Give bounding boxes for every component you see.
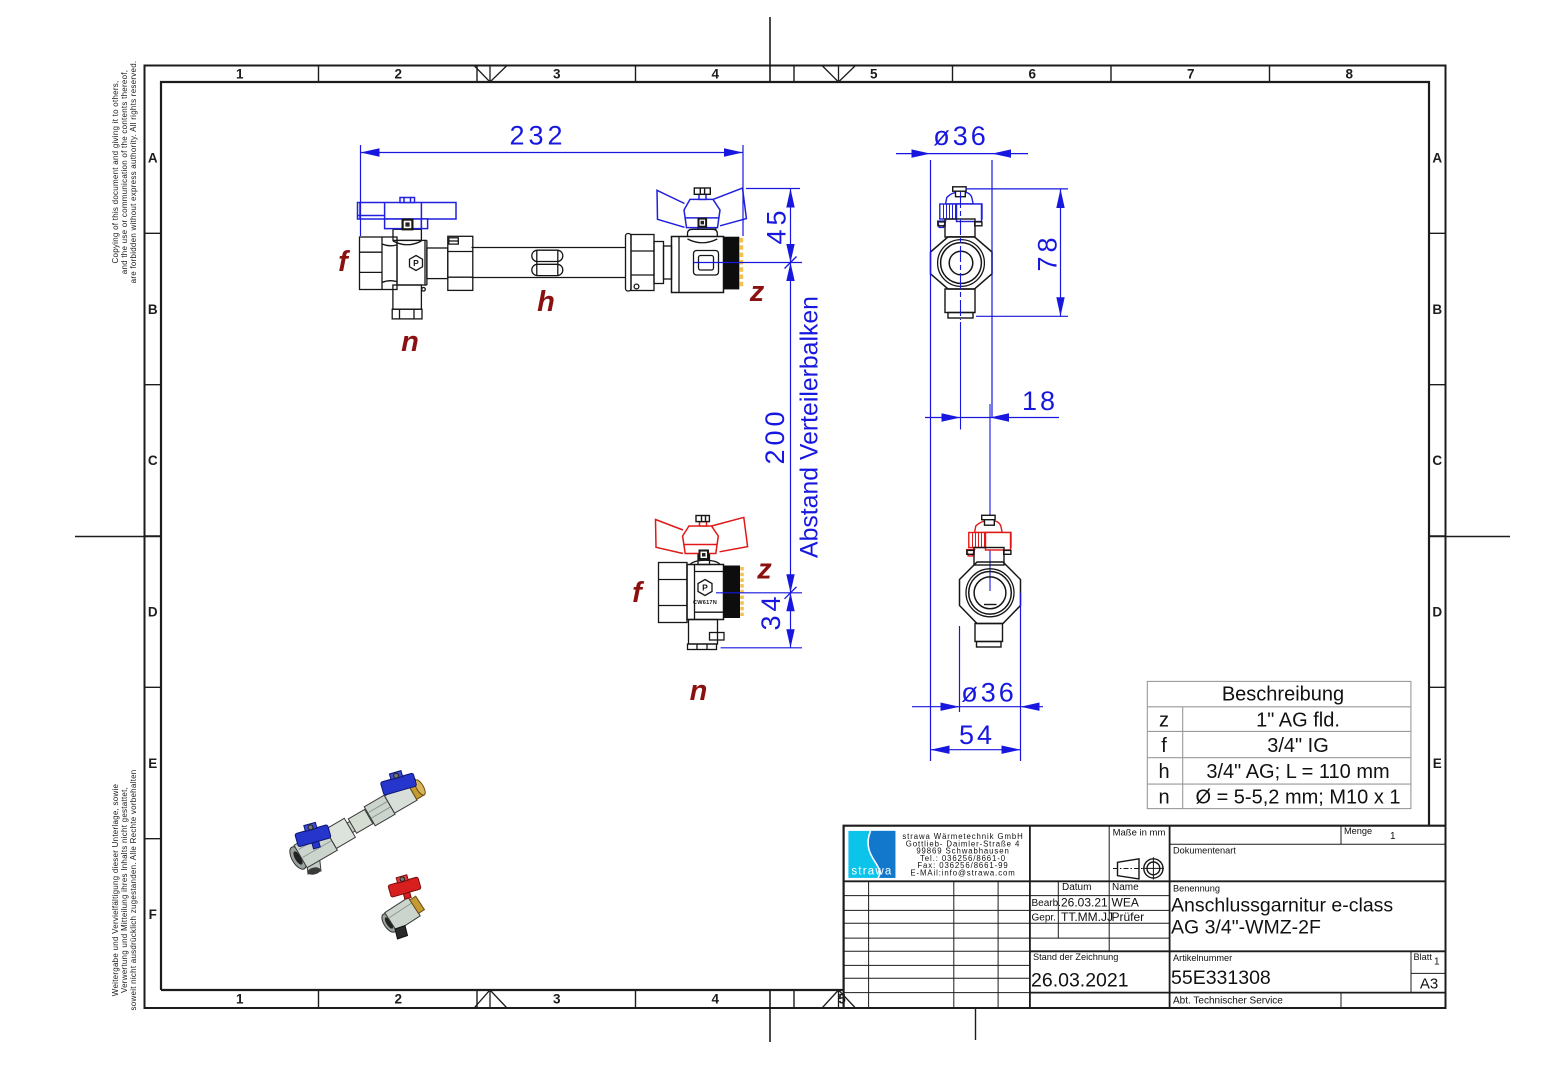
svg-text:34: 34 <box>756 592 786 630</box>
svg-text:B: B <box>1432 302 1442 317</box>
svg-text:f: f <box>338 246 351 278</box>
svg-text:Artikelnummer: Artikelnummer <box>1173 953 1232 963</box>
svg-text:CW617N: CW617N <box>693 600 717 606</box>
svg-text:Weitergabe und Vervielfältigun: Weitergabe und Vervielfältigung dieser U… <box>111 784 120 997</box>
svg-text:Datum: Datum <box>1062 882 1091 893</box>
svg-text:h: h <box>537 286 555 318</box>
svg-text:B: B <box>148 302 158 317</box>
svg-text:26.03.21: 26.03.21 <box>1061 896 1108 910</box>
svg-text:A: A <box>1432 151 1442 166</box>
svg-text:Maße in mm: Maße in mm <box>1113 828 1166 839</box>
svg-text:f: f <box>1161 735 1167 757</box>
svg-text:strawa: strawa <box>851 866 892 878</box>
svg-text:232: 232 <box>509 121 566 151</box>
svg-text:TT.MM.JJ: TT.MM.JJ <box>1061 910 1113 924</box>
svg-text:C: C <box>1432 453 1442 468</box>
svg-text:8: 8 <box>1346 67 1354 82</box>
svg-text:4: 4 <box>712 992 720 1007</box>
svg-text:18: 18 <box>1022 386 1058 416</box>
svg-text:Menge: Menge <box>1344 826 1372 836</box>
svg-text:are forbidden without express: are forbidden without express authority.… <box>129 61 138 284</box>
svg-text:n: n <box>401 326 419 358</box>
svg-text:1: 1 <box>1390 831 1396 842</box>
svg-text:Name: Name <box>1112 882 1139 893</box>
svg-text:2: 2 <box>395 992 403 1007</box>
svg-text:Dokumentenart: Dokumentenart <box>1173 846 1236 856</box>
svg-text:E: E <box>148 756 157 771</box>
svg-text:f: f <box>632 577 645 609</box>
svg-text:Stand der Zeichnung: Stand der Zeichnung <box>1033 952 1118 962</box>
svg-text:h: h <box>1158 761 1169 783</box>
svg-text:Copying of this document and g: Copying of this document and giving it t… <box>111 80 120 263</box>
svg-text:AG 3/4"-WMZ-2F: AG 3/4"-WMZ-2F <box>1171 917 1321 939</box>
svg-text:and the use or communication o: and the use or communication of the cont… <box>120 70 129 274</box>
svg-text:3: 3 <box>553 992 561 1007</box>
svg-text:D: D <box>1432 605 1442 620</box>
svg-text:z: z <box>756 554 772 586</box>
svg-text:1: 1 <box>1434 957 1440 968</box>
svg-text:200: 200 <box>760 407 790 464</box>
svg-text:Prüfer: Prüfer <box>1112 910 1145 924</box>
svg-text:45: 45 <box>762 206 792 244</box>
svg-text:78: 78 <box>1033 233 1063 271</box>
svg-text:P: P <box>702 583 708 593</box>
svg-text:n: n <box>690 675 708 707</box>
svg-text:z: z <box>1159 710 1169 732</box>
svg-text:ø36: ø36 <box>961 678 1017 708</box>
svg-text:F: F <box>149 907 157 922</box>
svg-text:z: z <box>749 276 765 308</box>
svg-text:Abt. Technischer Service: Abt. Technischer Service <box>1173 996 1283 1007</box>
svg-text:E: E <box>1433 756 1442 771</box>
svg-text:D: D <box>148 605 158 620</box>
svg-text:1: 1 <box>236 67 244 82</box>
svg-text:55E331308: 55E331308 <box>1171 967 1271 989</box>
svg-text:Anschlussgarnitur e-class: Anschlussgarnitur e-class <box>1171 895 1393 917</box>
svg-text:Bearb.: Bearb. <box>1032 898 1061 909</box>
svg-text:A: A <box>148 151 158 166</box>
svg-text:3/4" IG: 3/4" IG <box>1267 735 1329 757</box>
svg-text:Benennung: Benennung <box>1173 884 1220 894</box>
svg-text:5: 5 <box>838 992 846 1007</box>
svg-text:Ø = 5-5,2 mm; M10 x 1: Ø = 5-5,2 mm; M10 x 1 <box>1195 787 1400 809</box>
svg-text:26.03.2021: 26.03.2021 <box>1031 970 1129 992</box>
svg-text:1: 1 <box>236 992 244 1007</box>
svg-text:WEA: WEA <box>1112 896 1139 910</box>
svg-text:Beschreibung: Beschreibung <box>1222 684 1344 706</box>
svg-text:3/4" AG; L = 110 mm: 3/4" AG; L = 110 mm <box>1206 761 1389 783</box>
svg-text:n: n <box>1158 787 1169 809</box>
svg-text:2: 2 <box>395 67 403 82</box>
svg-text:Verwertung und Mitteilung ihre: Verwertung und Mitteilung ihres Inhalts … <box>120 787 129 993</box>
svg-text:7: 7 <box>1187 67 1195 82</box>
svg-text:5: 5 <box>870 67 878 82</box>
svg-text:Abstand Verteilerbalken: Abstand Verteilerbalken <box>797 296 824 558</box>
svg-text:6: 6 <box>1029 67 1037 82</box>
svg-text:P: P <box>413 258 419 268</box>
svg-text:C: C <box>148 453 158 468</box>
svg-text:E-MAil:info@strawa.com: E-MAil:info@strawa.com <box>910 869 1015 878</box>
svg-text:A3: A3 <box>1420 976 1438 993</box>
svg-text:Gepr.: Gepr. <box>1032 913 1056 924</box>
svg-text:soweit nicht ausdrücklich zuge: soweit nicht ausdrücklich zugestanden. A… <box>129 770 138 1011</box>
svg-text:1" AG fld.: 1" AG fld. <box>1256 710 1340 732</box>
svg-text:ø36: ø36 <box>933 121 989 151</box>
svg-text:4: 4 <box>712 67 720 82</box>
svg-text:Blatt: Blatt <box>1414 952 1433 962</box>
svg-text:54: 54 <box>959 720 995 750</box>
svg-text:3: 3 <box>553 67 561 82</box>
